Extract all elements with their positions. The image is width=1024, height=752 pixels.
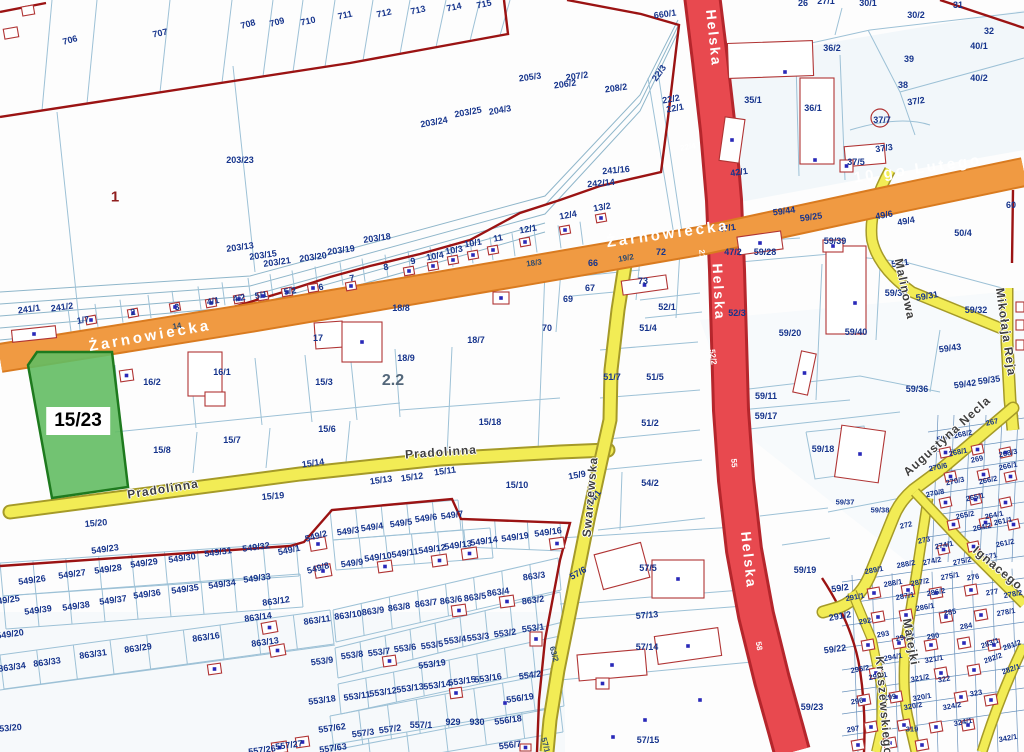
parcel-label: 557/26 bbox=[248, 743, 277, 752]
parcel-label: 42/1 bbox=[730, 166, 749, 178]
parcel-label: 15/10 bbox=[506, 480, 529, 490]
parcel-label: 59/43 bbox=[938, 341, 962, 354]
parcel-label: 52/1 bbox=[658, 302, 676, 312]
parcel-label: 270/3 bbox=[945, 475, 965, 488]
parcel-label: 205/3 bbox=[518, 70, 542, 83]
parcel-label: 13/2 bbox=[592, 201, 611, 214]
road-number-label: 22/4 bbox=[680, 141, 697, 153]
parcel-label: 2 bbox=[130, 307, 137, 318]
parcel-label: 208/2 bbox=[604, 81, 628, 94]
parcel-label: 553/15 bbox=[448, 674, 477, 688]
parcel-label: 553/7 bbox=[367, 645, 391, 658]
cadastral-map: 15/23 706707708709710711712713714715660/… bbox=[0, 0, 1024, 752]
parcel-label: 59/42 bbox=[953, 377, 977, 390]
parcel-label: 930 bbox=[469, 717, 484, 727]
parcel-label: 15/14 bbox=[301, 456, 325, 469]
parcel-label: 36/1 bbox=[804, 103, 822, 113]
parcel-label: 553/8 bbox=[340, 648, 364, 661]
parcel-label: 287/1 bbox=[895, 590, 915, 602]
parcel-label: 554/2 bbox=[518, 668, 542, 681]
map-labels: 15/23 706707708709710711712713714715660/… bbox=[0, 0, 1024, 752]
parcel-label: 59/11 bbox=[755, 391, 777, 401]
parcel-label: 31 bbox=[953, 0, 963, 10]
parcel-label: 203/19 bbox=[327, 243, 356, 257]
parcel-label: 282/2 bbox=[983, 651, 1004, 666]
parcel-label: 15/8 bbox=[153, 445, 171, 455]
parcel-label: 69 bbox=[563, 294, 573, 304]
parcel-label: 52/3 bbox=[728, 308, 746, 318]
parcel-label: 553/3 bbox=[466, 630, 490, 643]
parcel-label: 714 bbox=[446, 1, 463, 14]
highlighted-parcel-label: 15/23 bbox=[46, 407, 110, 435]
parcel-label: 293 bbox=[876, 628, 890, 639]
parcel-label: 26 bbox=[798, 0, 808, 8]
parcel-label: 59/18 bbox=[812, 444, 835, 454]
parcel-label: 863/34 bbox=[0, 660, 26, 674]
parcel-label: 863/5 bbox=[463, 590, 487, 603]
parcel-label: 557/2 bbox=[378, 722, 402, 735]
parcel-label: 39 bbox=[904, 54, 914, 64]
parcel-label: 275/1 bbox=[940, 570, 960, 582]
parcel-label: 11 bbox=[492, 232, 503, 244]
parcel-label: 549/38 bbox=[62, 599, 91, 613]
parcel-label: 287/2 bbox=[910, 576, 930, 588]
parcel-label: 322 bbox=[937, 673, 951, 684]
parcel-label: 15/6 bbox=[318, 424, 336, 434]
parcel-label: 712 bbox=[376, 7, 393, 20]
parcel-label: 18/8 bbox=[392, 303, 410, 313]
parcel-label: 278/1 bbox=[996, 606, 1016, 618]
parcel-label: 59/25 bbox=[799, 210, 823, 223]
parcel-label: 863/11 bbox=[303, 613, 331, 627]
parcel-label: 57/14 bbox=[636, 642, 659, 652]
parcel-label: 73 bbox=[638, 276, 648, 286]
parcel-label: 286/1 bbox=[915, 601, 935, 613]
parcel-label: 203/23 bbox=[226, 155, 254, 165]
parcel-label: 261/2 bbox=[995, 537, 1015, 550]
parcel-label: 863/3 bbox=[522, 569, 546, 582]
parcel-label: 36/2 bbox=[823, 43, 841, 53]
parcel-label: 60 bbox=[1006, 200, 1016, 210]
parcel-label: 59/38 bbox=[871, 506, 890, 515]
parcel-label: 7 bbox=[349, 273, 356, 284]
parcel-label: 266/2 bbox=[978, 474, 998, 487]
parcel-label: 553/5 bbox=[420, 638, 444, 651]
parcel-label: 553/16 bbox=[474, 671, 503, 685]
parcel-label: 321/2 bbox=[910, 672, 930, 684]
parcel-label: 713 bbox=[410, 4, 427, 17]
parcel-label: 59/22 bbox=[823, 642, 847, 655]
parcel-label: 277 bbox=[985, 586, 999, 597]
parcel-label: 863/2 bbox=[521, 593, 545, 606]
parcel-label: 18/7 bbox=[467, 335, 485, 345]
parcel-label: 553/9 bbox=[310, 654, 334, 667]
road-number-label: 19/2 bbox=[618, 252, 635, 264]
parcel-label: 320/2 bbox=[903, 700, 923, 712]
parcel-label: 556/18 bbox=[494, 713, 523, 727]
parcel-label: 37/2 bbox=[907, 95, 926, 107]
parcel-label: 553/18 bbox=[308, 693, 337, 707]
parcel-label: 40/1 bbox=[970, 41, 988, 51]
parcel-label: 30/1 bbox=[859, 0, 877, 8]
parcel-label: 59/36 bbox=[906, 384, 929, 394]
parcel-label: 270/8 bbox=[925, 487, 945, 500]
parcel-label: 264/2 bbox=[972, 521, 992, 534]
parcel-label: 70 bbox=[542, 323, 552, 333]
parcel-label: 291/1 bbox=[845, 591, 865, 603]
parcel-label: 22/1 bbox=[665, 102, 684, 115]
parcel-label: 18/9 bbox=[397, 353, 415, 363]
parcel-label: 32 bbox=[984, 26, 994, 36]
parcel-label: 57/13 bbox=[635, 609, 658, 621]
parcel-label: 275/2 bbox=[952, 555, 972, 568]
parcel-label: 17 bbox=[313, 333, 323, 343]
parcel-label: 51/2 bbox=[641, 418, 659, 428]
parcel-label: 57/15 bbox=[637, 735, 660, 745]
parcel-label: 290 bbox=[926, 630, 940, 641]
parcel-label: 556/7 bbox=[498, 738, 522, 751]
parcel-label: 863/13 bbox=[251, 635, 280, 649]
parcel-label: 265/2 bbox=[955, 509, 975, 522]
parcel-label: 59/39 bbox=[824, 236, 847, 246]
parcel-label: 8 bbox=[383, 262, 390, 273]
parcel-label: 15/13 bbox=[369, 473, 393, 486]
parcel-label: 15/12 bbox=[400, 470, 424, 483]
road-number-label: 63/2 bbox=[548, 645, 561, 662]
parcel-label: 241/16 bbox=[602, 164, 630, 176]
parcel-label: 50/4 bbox=[954, 228, 972, 238]
parcel-label: 203/25 bbox=[454, 105, 483, 120]
parcel-label: 288/2 bbox=[896, 558, 916, 570]
parcel-label: 342/1 bbox=[998, 732, 1018, 744]
street-label: Pradolinna bbox=[126, 476, 199, 501]
parcel-label: 863/33 bbox=[33, 655, 62, 669]
parcel-label: 549/2 bbox=[304, 528, 328, 543]
parcel-label: 549/37 bbox=[99, 593, 128, 607]
parcel-label: 1/7 bbox=[76, 314, 90, 326]
parcel-label: 5/2 bbox=[283, 285, 297, 297]
parcel-label: 549/10 bbox=[364, 550, 393, 564]
parcel-label: 323 bbox=[969, 687, 983, 698]
parcel-label: 57/5 bbox=[639, 563, 657, 573]
parcel-label: 296 bbox=[850, 695, 864, 706]
parcel-label: 4/2 bbox=[232, 292, 246, 304]
parcel-label: 549/13 bbox=[444, 538, 473, 552]
parcel-label: 241/1 bbox=[17, 302, 41, 315]
parcel-label: 863/6 bbox=[439, 593, 463, 606]
parcel-label: 203/24 bbox=[420, 115, 449, 130]
parcel-label: 863/9 bbox=[361, 604, 385, 617]
parcel-label: 2.2 bbox=[382, 372, 404, 390]
parcel-label: 549/7 bbox=[440, 508, 464, 521]
parcel-label: 285 bbox=[943, 606, 957, 617]
parcel-label: 15/20 bbox=[84, 517, 107, 529]
parcel-label: 549/12 bbox=[418, 542, 447, 556]
parcel-label: 274/1 bbox=[934, 539, 954, 552]
parcel-label: 549/1 bbox=[277, 543, 301, 557]
street-label: Mikołaja Reja bbox=[993, 287, 1019, 377]
parcel-label: 10/4 bbox=[425, 250, 444, 263]
parcel-label: 49/4 bbox=[896, 215, 915, 228]
parcel-label: 12/4 bbox=[558, 209, 577, 222]
parcel-label: 549/26 bbox=[18, 573, 47, 587]
parcel-label: 59/2 bbox=[831, 582, 850, 594]
parcel-label: 59/37 bbox=[836, 498, 855, 507]
parcel-label: 59/28 bbox=[754, 247, 777, 257]
parcel-label: 273 bbox=[917, 534, 931, 545]
parcel-label: 276 bbox=[966, 571, 980, 582]
parcel-label: 553/12 bbox=[369, 685, 398, 699]
road-number-label: 14 bbox=[172, 321, 182, 331]
parcel-label: 203/18 bbox=[363, 231, 392, 245]
parcel-label: 47/2 bbox=[724, 247, 742, 257]
parcel-label: 59/20 bbox=[779, 328, 802, 338]
parcel-label: 549/39 bbox=[24, 603, 53, 617]
parcel-label: 709 bbox=[268, 15, 285, 29]
parcel-label: 72 bbox=[656, 247, 666, 257]
parcel-label: 15/7 bbox=[223, 435, 241, 445]
parcel-label: 297 bbox=[846, 723, 860, 734]
parcel-label: 267 bbox=[985, 416, 999, 427]
parcel-label: 706 bbox=[61, 33, 78, 47]
parcel-label: 35/1 bbox=[744, 95, 762, 105]
road-number-label: 55 bbox=[729, 458, 739, 468]
parcel-label: 38 bbox=[898, 80, 908, 90]
street-label: Matejki bbox=[900, 617, 922, 666]
parcel-label: 321/1 bbox=[924, 653, 944, 665]
parcel-label: 37/7 bbox=[873, 115, 891, 125]
parcel-label: 549/23 bbox=[91, 542, 120, 556]
parcel-label: 553/6 bbox=[393, 641, 417, 654]
parcel-label: 549/32 bbox=[242, 540, 271, 554]
parcel-label: 59/19 bbox=[794, 565, 817, 575]
parcel-label: 549/27 bbox=[58, 567, 87, 581]
parcel-label: 553/4 bbox=[443, 633, 467, 646]
parcel-label: 16/2 bbox=[143, 377, 161, 387]
parcel-label: 16/1 bbox=[213, 367, 231, 377]
parcel-label: 59/23 bbox=[801, 702, 824, 712]
parcel-label: 549/29 bbox=[130, 556, 159, 570]
parcel-label: 549/33 bbox=[243, 571, 272, 585]
parcel-label: 549/11 bbox=[391, 546, 419, 560]
parcel-label: 549/19 bbox=[501, 530, 530, 544]
parcel-label: 54/2 bbox=[641, 478, 659, 488]
parcel-label: 863/29 bbox=[124, 641, 153, 655]
parcel-label: 549/6 bbox=[414, 511, 438, 524]
parcel-label: 204/3 bbox=[488, 103, 512, 117]
parcel-label: 557/3 bbox=[351, 726, 375, 739]
parcel-label: 5/1 bbox=[254, 289, 268, 301]
parcel-label: 59/32 bbox=[965, 305, 988, 315]
parcel-label: 863/14 bbox=[244, 610, 273, 624]
parcel-label: 272 bbox=[899, 519, 913, 530]
parcel-label: 268/3 bbox=[998, 447, 1018, 460]
parcel-label: 863/12 bbox=[262, 594, 291, 608]
parcel-label: 59/44 bbox=[772, 204, 796, 217]
parcel-label: 37/5 bbox=[847, 157, 865, 167]
parcel-label: 553/13 bbox=[396, 681, 425, 695]
parcel-label: 284 bbox=[959, 620, 973, 631]
parcel-label: 708 bbox=[239, 17, 256, 31]
parcel-label: 319 bbox=[906, 725, 919, 734]
parcel-label: 863/10 bbox=[334, 608, 363, 622]
parcel-label: 6 bbox=[318, 282, 325, 293]
parcel-label: 549/16 bbox=[534, 525, 563, 539]
parcel-label: 66 bbox=[588, 258, 598, 268]
parcel-label: 549/14 bbox=[470, 534, 499, 548]
parcel-label: 40/2 bbox=[970, 73, 988, 83]
parcel-label: 549/31 bbox=[204, 545, 233, 559]
street-label: Pradolinna bbox=[405, 443, 478, 462]
parcel-label: 557/63 bbox=[319, 741, 348, 752]
parcel-label: 10/1 bbox=[463, 237, 482, 250]
parcel-label: 207/2 bbox=[565, 69, 589, 82]
road-number-label: 21 bbox=[697, 249, 707, 259]
parcel-label: 549/3 bbox=[336, 524, 360, 537]
parcel-label: 549/30 bbox=[168, 551, 197, 565]
parcel-label: 27/1 bbox=[817, 0, 835, 6]
parcel-label: 57/6 bbox=[568, 564, 588, 581]
parcel-label: 30/2 bbox=[907, 10, 925, 20]
parcel-label: 282/1 bbox=[1001, 662, 1022, 677]
parcel-label: 660/1 bbox=[653, 7, 677, 20]
parcel-label: 549/34 bbox=[208, 577, 237, 591]
parcel-label: 549/4 bbox=[360, 520, 384, 533]
parcel-label: 37/3 bbox=[875, 142, 894, 154]
parcel-label: 549/36 bbox=[133, 587, 162, 601]
street-label: Żarnowiecka bbox=[88, 317, 213, 355]
parcel-label: 268/1 bbox=[948, 446, 968, 459]
parcel-label: 49/6 bbox=[874, 209, 893, 222]
parcel-label: 292 bbox=[858, 615, 872, 626]
parcel-label: 9 bbox=[410, 256, 417, 267]
parcel-label: 242/14 bbox=[587, 177, 615, 189]
parcel-label: 286/2 bbox=[926, 586, 946, 598]
parcel-label: 557/62 bbox=[318, 721, 347, 735]
parcel-label: 863/7 bbox=[414, 596, 438, 609]
street-label: Helska bbox=[738, 531, 760, 590]
parcel-label: 67 bbox=[585, 283, 595, 293]
parcel-label: 274/2 bbox=[922, 555, 942, 568]
road-number-label: 18/3 bbox=[526, 257, 543, 268]
parcel-label: 15/18 bbox=[479, 417, 502, 427]
street-label: Kraszewskiego bbox=[873, 656, 896, 752]
road-number-label: 57/11 bbox=[539, 736, 553, 752]
street-label: Helska bbox=[703, 9, 725, 68]
parcel-label: 549/8 bbox=[306, 560, 330, 575]
parcel-label: 549/25 bbox=[0, 593, 20, 607]
parcel-label: 557/1 bbox=[410, 720, 433, 730]
parcel-label: 863/16 bbox=[192, 630, 221, 644]
parcel-label: 289/1 bbox=[864, 564, 884, 576]
parcel-label: 324/2 bbox=[942, 700, 962, 712]
parcel-label: 710 bbox=[300, 15, 317, 28]
street-label: 10 go Lutego bbox=[853, 152, 983, 187]
road-number-label: 58 bbox=[754, 641, 764, 651]
parcel-label: 51/7 bbox=[603, 372, 621, 382]
parcel-label: 10/3 bbox=[444, 244, 463, 257]
parcel-label: 556/19 bbox=[506, 691, 535, 705]
parcel-label: 863/4 bbox=[486, 585, 510, 598]
street-label: Helska bbox=[710, 263, 729, 321]
parcel-label: 59/35 bbox=[977, 373, 1001, 386]
parcel-label: 553/19 bbox=[418, 657, 447, 671]
parcel-label: 12/1 bbox=[518, 223, 537, 236]
parcel-label: 549/20 bbox=[0, 627, 24, 641]
parcel-label: 266/1 bbox=[998, 460, 1018, 473]
parcel-label: 4/1 bbox=[206, 295, 220, 307]
parcel-label: 549/28 bbox=[94, 562, 123, 576]
parcel-label: 241/2 bbox=[50, 300, 74, 313]
parcel-label: 15/19 bbox=[261, 490, 284, 502]
parcel-label: 203/20 bbox=[299, 250, 328, 264]
parcel-label: 281/2 bbox=[1002, 638, 1023, 653]
parcel-label: 270/6 bbox=[928, 461, 948, 474]
parcel-label: 51/4 bbox=[639, 323, 657, 333]
street-label: Żarnowiecka bbox=[605, 217, 730, 251]
parcel-label: 269 bbox=[970, 453, 984, 464]
parcel-label: 59/40 bbox=[845, 327, 868, 337]
parcel-label: 553/20 bbox=[0, 722, 22, 734]
parcel-label: 553/1 bbox=[521, 621, 545, 634]
parcel-label: 929 bbox=[445, 717, 460, 727]
parcel-label: 707 bbox=[152, 27, 169, 40]
parcel-label: 15/11 bbox=[433, 465, 456, 478]
parcel-label: 711 bbox=[337, 9, 353, 22]
parcel-label: 324/1 bbox=[953, 716, 973, 728]
parcel-label: 51/5 bbox=[646, 372, 664, 382]
parcel-label: 291/2 bbox=[828, 609, 852, 623]
parcel-label: 553/11 bbox=[343, 689, 371, 703]
parcel-label: 553/2 bbox=[493, 626, 517, 639]
parcel-label: 863/8 bbox=[387, 600, 411, 613]
parcel-label: 3 bbox=[174, 302, 181, 313]
parcel-label: 265/1 bbox=[965, 491, 985, 504]
road-number-label: 52/2 bbox=[707, 349, 718, 366]
parcel-label: 549/9 bbox=[340, 556, 364, 569]
parcel-label: 863/31 bbox=[79, 647, 108, 661]
parcel-label: 1 bbox=[111, 189, 119, 206]
parcel-label: 59/31 bbox=[915, 289, 939, 303]
parcel-label: 549/35 bbox=[171, 582, 200, 596]
parcel-label: 549/5 bbox=[389, 516, 413, 529]
parcel-label: 557/27 bbox=[275, 738, 304, 752]
parcel-label: 15/3 bbox=[315, 377, 333, 387]
parcel-label: 283/1 bbox=[980, 636, 1001, 651]
parcel-label: 59/17 bbox=[755, 411, 778, 421]
parcel-label: 22/3 bbox=[650, 63, 668, 83]
parcel-label: 288/1 bbox=[883, 577, 903, 589]
parcel-label: 715 bbox=[476, 0, 493, 10]
